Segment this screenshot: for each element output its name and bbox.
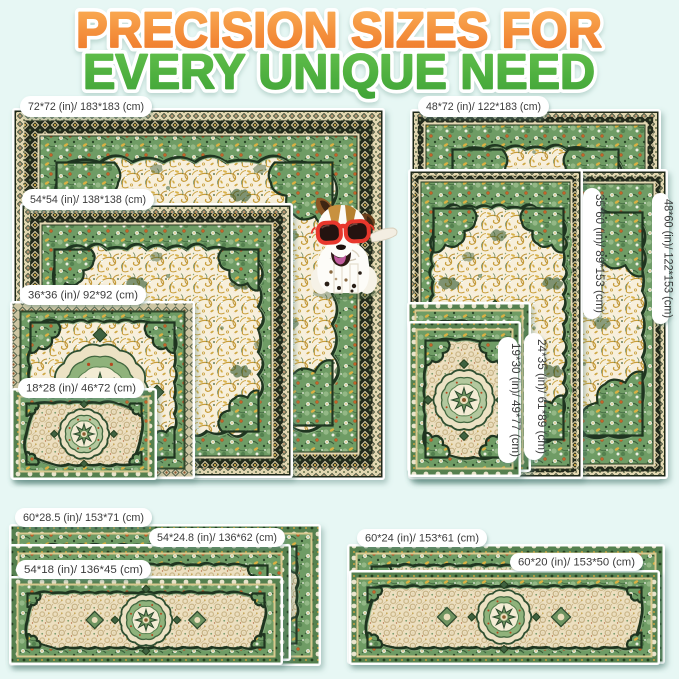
svg-text:35*60 (in)/ 89*153 (cm): 35*60 (in)/ 89*153 (cm) — [593, 194, 607, 313]
svg-text:54*54 (in)/ 138*138 (cm): 54*54 (in)/ 138*138 (cm) — [30, 194, 146, 206]
svg-text:60*24 (in)/ 153*61 (cm): 60*24 (in)/ 153*61 (cm) — [365, 533, 479, 545]
svg-text:54*18 (in)/ 136*45 (cm): 54*18 (in)/ 136*45 (cm) — [24, 564, 143, 576]
svg-text:18*28 (in)/ 46*72 (cm): 18*28 (in)/ 46*72 (cm) — [26, 383, 136, 395]
svg-text:EVERY UNIQUE NEED: EVERY UNIQUE NEED — [83, 46, 595, 100]
svg-text:48*72 (in)/ 122*183 (cm): 48*72 (in)/ 122*183 (cm) — [426, 101, 541, 113]
svg-text:19*30 (in)/ 49*77 (cm): 19*30 (in)/ 49*77 (cm) — [509, 343, 523, 457]
svg-text:60*20 (in)/ 153*50 (cm): 60*20 (in)/ 153*50 (cm) — [518, 557, 635, 569]
svg-text:54*24.8 (in)/ 136*62 (cm): 54*24.8 (in)/ 136*62 (cm) — [157, 532, 277, 544]
svg-text:24*35 (in)/ 61*89 (cm): 24*35 (in)/ 61*89 (cm) — [535, 339, 549, 454]
svg-text:48*60 (in)/ 122*153 (cm): 48*60 (in)/ 122*153 (cm) — [662, 199, 676, 318]
svg-text:60*28.5 (in)/ 153*71 (cm): 60*28.5 (in)/ 153*71 (cm) — [23, 512, 144, 524]
svg-text:72*72 (in)/ 183*183 (cm): 72*72 (in)/ 183*183 (cm) — [28, 101, 144, 113]
svg-text:36*36 (in)/ 92*92 (cm): 36*36 (in)/ 92*92 (cm) — [28, 290, 138, 302]
